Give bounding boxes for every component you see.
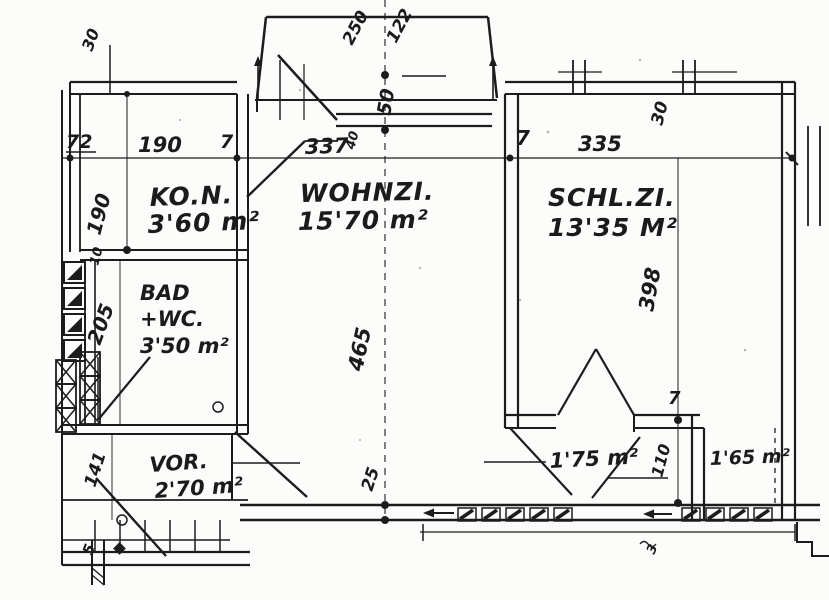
room-area-hall: 2'70 m² <box>154 473 245 503</box>
room-area-loggia-right: 1'65 m² <box>709 445 791 470</box>
dim-bath-depth: 205 <box>82 300 119 347</box>
dim-bay-b: 122 <box>383 6 417 47</box>
dim-hall-depth: 141 <box>81 450 111 490</box>
room-area-kitchen: 3'60 m² <box>147 206 260 239</box>
dim-kitchen-depth: 190 <box>82 191 116 238</box>
door-swing-bay <box>278 55 337 120</box>
room-area-loggia-left: 1'75 m² <box>549 444 640 473</box>
door-swing-hall <box>235 432 307 497</box>
room-label-bath-2: +WC. <box>140 307 204 331</box>
room-area-bath: 3'50 m² <box>140 334 229 358</box>
dim-kitchen-width: 190 <box>138 133 182 157</box>
dim-living-depth: 465 <box>343 325 376 374</box>
dim-bedroom-width: 335 <box>578 132 622 156</box>
door-swing-bedroom <box>558 349 596 415</box>
door-swing-bath <box>98 357 150 420</box>
arrow-left-icon <box>423 509 434 518</box>
arrow-up-icon <box>489 56 497 66</box>
room-label-bath-1: BAD <box>140 281 190 305</box>
room-label-bedroom: SCHL.ZI. <box>548 183 676 212</box>
door-swing-kitchen <box>247 141 305 197</box>
dim-partition-c: 7 <box>668 388 681 409</box>
floor-plan-page: KO.N. 3'60 m² WOHNZI. 15'70 m² SCHL.ZI. … <box>0 0 829 600</box>
dim-loggia-depth: 110 <box>648 442 675 479</box>
hatched-square <box>64 262 85 361</box>
dim-bottom-tick: 3 <box>644 542 661 557</box>
room-label-living: WOHNZI. <box>300 177 435 208</box>
dim-bay-a: 250 <box>339 7 373 48</box>
floor-plan-drawing: KO.N. 3'60 m² WOHNZI. 15'70 m² SCHL.ZI. … <box>0 0 829 600</box>
room-label-hall: VOR. <box>149 449 209 477</box>
dim-bedroom-tick: 30 <box>648 99 673 127</box>
dim-left-wall: 72 <box>66 131 92 153</box>
dim-bay-depth: 50 <box>373 87 399 117</box>
room-area-bedroom: 13'35 M² <box>548 213 678 242</box>
room-area-living: 15'70 m² <box>298 205 429 236</box>
dim-bedroom-depth: 398 <box>634 266 665 313</box>
dim-top-tick: 30 <box>78 26 103 53</box>
door-pivot <box>117 515 127 525</box>
dim-stair-tick: 5 <box>79 541 99 557</box>
arrow-left-icon <box>643 510 654 519</box>
dim-wall-10: 10 <box>87 246 106 267</box>
dim-partition-b: 7 <box>516 126 530 150</box>
dim-partition-a: 7 <box>220 131 234 153</box>
door-pivot <box>213 402 223 412</box>
dim-sill-25: 25 <box>358 465 384 494</box>
corner-steps <box>797 522 829 556</box>
